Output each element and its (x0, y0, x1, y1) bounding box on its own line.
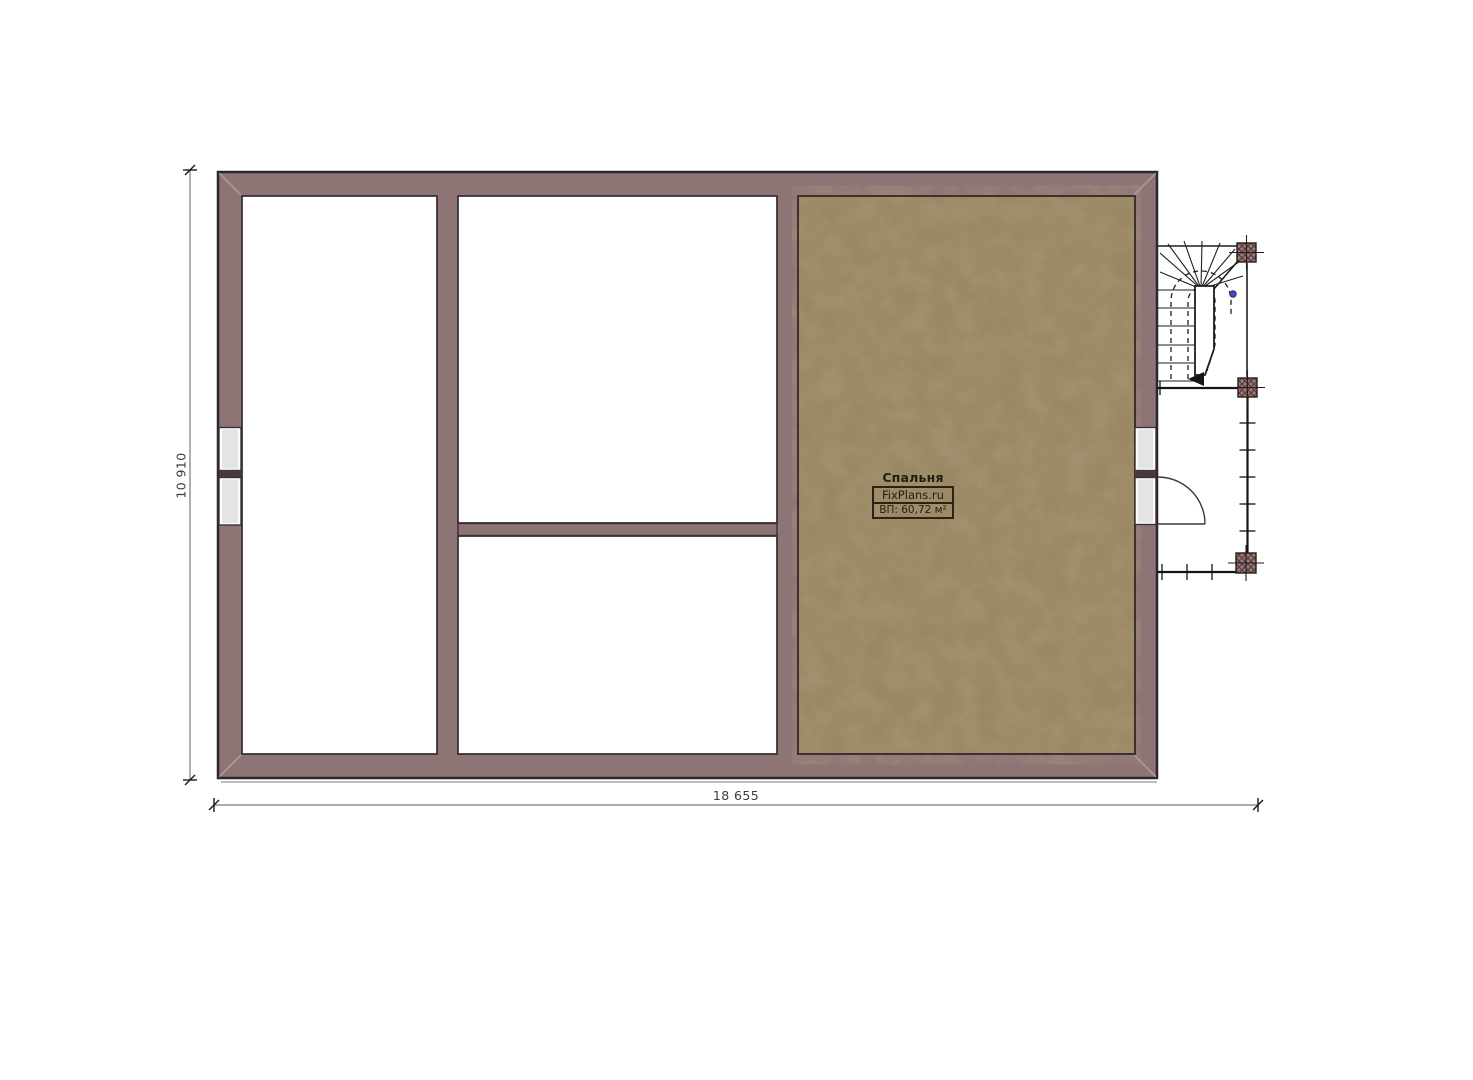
floor-plan-svg (0, 0, 1473, 1080)
stair-winder-treads (1160, 241, 1243, 289)
window-left-lower (219, 478, 241, 526)
window-right-mullion (1135, 470, 1156, 478)
room-left (242, 196, 437, 754)
bedroom-label-title: Спальня (872, 470, 954, 485)
dim-width-label: 18 655 (701, 788, 771, 803)
post-middle (1230, 370, 1265, 405)
room-middle-upper (458, 196, 777, 523)
stair-winder-edge (1214, 262, 1237, 289)
bedroom-floor-texture (799, 197, 1134, 753)
bedroom-label-box: FixPlans.ru ВП: 60,72 м² (872, 486, 954, 519)
window-right (1135, 428, 1156, 471)
window-left-upper (219, 428, 241, 471)
knee-wall-divider (458, 524, 777, 536)
window-left-mullion (219, 470, 241, 478)
stair-well (1195, 286, 1214, 375)
dim-height-label: 10 910 (174, 446, 189, 506)
stair-marker-dot (1230, 291, 1236, 297)
bedroom-label-brand: FixPlans.ru (874, 488, 952, 504)
floor-plan-canvas: Спальня FixPlans.ru ВП: 60,72 м² 10 910 … (0, 0, 1473, 1080)
room-middle-lower (458, 536, 777, 754)
bedroom-label-area: ВП: 60,72 м² (874, 504, 952, 517)
staircase (1157, 241, 1247, 386)
post-bottom (1228, 545, 1264, 581)
balcony-door-opening (1135, 478, 1156, 525)
room-bedroom (798, 196, 1135, 754)
balcony-railing (1157, 381, 1256, 580)
balcony-door-swing (1158, 477, 1205, 524)
stair-straight-treads (1157, 290, 1195, 381)
